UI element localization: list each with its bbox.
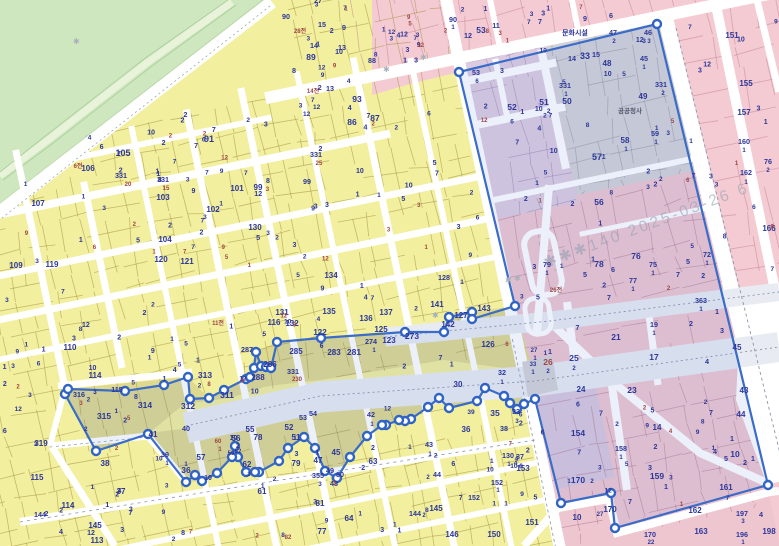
svg-text:7: 7 xyxy=(459,495,463,502)
svg-text:109: 109 xyxy=(9,261,23,270)
svg-text:76: 76 xyxy=(631,251,641,261)
svg-text:115: 115 xyxy=(111,385,123,394)
svg-text:5: 5 xyxy=(296,272,300,279)
svg-text:3: 3 xyxy=(530,11,534,18)
svg-text:3: 3 xyxy=(541,10,545,17)
svg-text:1: 1 xyxy=(664,482,668,491)
svg-text:7: 7 xyxy=(438,355,442,362)
svg-text:7: 7 xyxy=(549,112,553,119)
svg-text:5: 5 xyxy=(433,160,437,167)
svg-text:137: 137 xyxy=(379,308,393,317)
svg-text:3: 3 xyxy=(666,130,670,137)
svg-text:25: 25 xyxy=(316,161,323,167)
svg-text:6: 6 xyxy=(611,265,615,274)
svg-text:12: 12 xyxy=(388,29,396,36)
svg-text:2: 2 xyxy=(526,448,530,455)
svg-text:2: 2 xyxy=(3,381,7,388)
svg-text:8: 8 xyxy=(425,507,429,514)
svg-text:26전: 26전 xyxy=(550,286,563,294)
svg-text:127: 127 xyxy=(454,311,468,320)
svg-text:5: 5 xyxy=(536,294,540,301)
svg-text:86: 86 xyxy=(347,117,357,127)
svg-text:314: 314 xyxy=(138,400,152,410)
svg-text:3: 3 xyxy=(709,174,713,181)
svg-text:113: 113 xyxy=(91,536,104,545)
svg-text:8: 8 xyxy=(181,530,185,537)
svg-text:52: 52 xyxy=(285,423,294,432)
svg-text:15: 15 xyxy=(318,20,326,29)
svg-text:✱: ✱ xyxy=(514,274,521,283)
svg-text:9: 9 xyxy=(468,252,472,259)
svg-text:14: 14 xyxy=(568,54,576,63)
svg-text:1: 1 xyxy=(712,445,716,452)
svg-text:2: 2 xyxy=(402,364,406,371)
svg-text:7: 7 xyxy=(61,289,65,296)
svg-text:1: 1 xyxy=(105,502,109,509)
svg-text:2: 2 xyxy=(172,536,176,543)
svg-text:17: 17 xyxy=(649,352,659,362)
svg-text:2: 2 xyxy=(143,310,147,317)
svg-text:5: 5 xyxy=(184,341,188,348)
svg-text:78: 78 xyxy=(594,259,604,269)
svg-text:9: 9 xyxy=(583,14,587,23)
svg-text:1: 1 xyxy=(170,336,174,343)
svg-text:3: 3 xyxy=(698,68,702,75)
svg-text:1: 1 xyxy=(356,191,360,198)
svg-text:6: 6 xyxy=(451,461,455,468)
svg-text:363: 363 xyxy=(695,296,707,305)
svg-text:2: 2 xyxy=(704,399,708,406)
svg-text:53: 53 xyxy=(299,413,307,422)
svg-text:25: 25 xyxy=(569,353,579,363)
svg-text:15: 15 xyxy=(592,50,600,59)
svg-text:21: 21 xyxy=(611,332,621,342)
svg-text:152: 152 xyxy=(491,478,503,487)
svg-text:36: 36 xyxy=(462,425,471,434)
svg-text:8: 8 xyxy=(609,190,613,197)
svg-text:44: 44 xyxy=(737,410,746,419)
svg-text:2: 2 xyxy=(743,458,747,467)
svg-text:10: 10 xyxy=(535,106,543,113)
svg-text:197: 197 xyxy=(736,509,748,518)
svg-text:7: 7 xyxy=(413,35,417,42)
svg-text:3: 3 xyxy=(646,184,650,191)
svg-text:1: 1 xyxy=(24,181,28,188)
svg-text:7: 7 xyxy=(128,510,132,517)
svg-text:10: 10 xyxy=(155,455,163,462)
svg-text:1: 1 xyxy=(377,192,381,199)
svg-text:3: 3 xyxy=(186,177,190,184)
svg-text:1: 1 xyxy=(148,355,152,362)
svg-text:9: 9 xyxy=(220,168,224,175)
svg-text:283: 283 xyxy=(327,348,341,357)
svg-text:2: 2 xyxy=(524,196,528,203)
svg-text:5: 5 xyxy=(178,362,182,369)
svg-text:27: 27 xyxy=(531,348,538,354)
svg-text:15: 15 xyxy=(163,186,170,192)
svg-text:3: 3 xyxy=(715,181,719,188)
svg-text:2: 2 xyxy=(200,229,204,236)
svg-text:3: 3 xyxy=(34,441,38,448)
svg-text:157: 157 xyxy=(737,108,751,117)
svg-text:3: 3 xyxy=(457,224,461,231)
svg-text:3: 3 xyxy=(295,451,299,458)
svg-text:2: 2 xyxy=(84,426,88,433)
svg-text:1: 1 xyxy=(598,221,602,228)
svg-text:107: 107 xyxy=(31,199,45,208)
svg-text:1: 1 xyxy=(24,342,28,349)
svg-text:49: 49 xyxy=(639,92,648,101)
svg-text:114: 114 xyxy=(89,371,102,380)
svg-text:7: 7 xyxy=(676,270,680,279)
svg-text:80: 80 xyxy=(336,470,344,479)
svg-text:✱: ✱ xyxy=(420,53,427,62)
svg-text:56: 56 xyxy=(594,197,604,207)
svg-text:12: 12 xyxy=(318,65,326,72)
svg-text:8: 8 xyxy=(374,51,378,58)
svg-text:1: 1 xyxy=(219,201,223,208)
svg-text:144: 144 xyxy=(409,509,421,518)
svg-text:5: 5 xyxy=(136,237,140,244)
svg-text:14: 14 xyxy=(653,423,662,432)
svg-text:45: 45 xyxy=(640,54,648,63)
svg-text:7: 7 xyxy=(194,143,198,150)
svg-text:58: 58 xyxy=(621,136,630,145)
svg-text:355: 355 xyxy=(312,471,324,480)
svg-text:162: 162 xyxy=(740,168,752,177)
svg-text:3: 3 xyxy=(669,475,673,482)
svg-text:9: 9 xyxy=(774,19,778,26)
svg-text:3: 3 xyxy=(598,464,602,471)
svg-text:5: 5 xyxy=(401,196,405,203)
svg-text:9: 9 xyxy=(520,491,524,498)
svg-text:10: 10 xyxy=(550,148,558,155)
svg-text:48: 48 xyxy=(603,59,612,68)
svg-text:3: 3 xyxy=(325,202,329,209)
svg-text:151: 151 xyxy=(525,518,539,527)
svg-text:1: 1 xyxy=(484,6,488,13)
svg-text:77: 77 xyxy=(318,527,327,536)
svg-text:24: 24 xyxy=(577,385,586,394)
svg-text:7: 7 xyxy=(628,497,632,506)
svg-text:3: 3 xyxy=(28,392,32,399)
svg-text:82: 82 xyxy=(285,535,292,541)
svg-text:7: 7 xyxy=(173,158,177,165)
svg-text:150: 150 xyxy=(487,530,501,539)
svg-text:8: 8 xyxy=(158,177,162,184)
svg-text:6: 6 xyxy=(510,118,514,125)
svg-text:1: 1 xyxy=(535,180,539,187)
svg-text:119: 119 xyxy=(46,260,59,269)
svg-text:3: 3 xyxy=(72,335,76,342)
svg-text:2: 2 xyxy=(303,254,307,261)
svg-text:89: 89 xyxy=(306,52,316,62)
svg-text:2: 2 xyxy=(371,445,375,452)
svg-text:126: 126 xyxy=(481,340,495,349)
svg-text:287: 287 xyxy=(241,345,253,354)
svg-text:123: 123 xyxy=(382,336,396,345)
svg-text:45: 45 xyxy=(332,448,341,457)
svg-text:1: 1 xyxy=(315,450,319,457)
svg-text:3: 3 xyxy=(293,242,297,249)
svg-text:4: 4 xyxy=(537,126,541,133)
svg-text:10: 10 xyxy=(730,449,740,459)
svg-text:9: 9 xyxy=(321,72,325,79)
svg-text:120: 120 xyxy=(154,255,168,264)
svg-text:7: 7 xyxy=(205,169,209,176)
svg-text:54: 54 xyxy=(309,409,317,418)
svg-text:40: 40 xyxy=(182,424,190,433)
svg-text:2: 2 xyxy=(275,234,279,241)
svg-text:2: 2 xyxy=(701,273,705,280)
svg-text:45: 45 xyxy=(733,343,742,352)
svg-text:12: 12 xyxy=(400,32,408,39)
svg-text:8: 8 xyxy=(292,66,296,75)
svg-text:10: 10 xyxy=(737,37,745,44)
svg-text:1: 1 xyxy=(79,237,83,244)
svg-text:32: 32 xyxy=(498,368,506,377)
svg-text:✱: ✱ xyxy=(432,311,439,320)
svg-text:1: 1 xyxy=(316,42,320,49)
svg-text:2: 2 xyxy=(653,444,657,451)
svg-text:7: 7 xyxy=(538,17,542,26)
svg-text:1: 1 xyxy=(450,362,454,369)
svg-text:3: 3 xyxy=(380,527,384,534)
svg-text:12: 12 xyxy=(254,191,262,198)
svg-text:1: 1 xyxy=(751,456,755,463)
svg-text:125: 125 xyxy=(374,325,388,334)
svg-text:2: 2 xyxy=(236,443,240,450)
svg-text:114: 114 xyxy=(62,501,75,510)
svg-text:142: 142 xyxy=(441,320,455,329)
svg-text:285: 285 xyxy=(289,347,303,356)
svg-text:1: 1 xyxy=(602,154,606,161)
svg-text:154: 154 xyxy=(571,428,585,438)
svg-text:7: 7 xyxy=(576,325,580,332)
svg-text:1: 1 xyxy=(764,119,768,126)
svg-text:7: 7 xyxy=(244,170,248,177)
svg-text:53: 53 xyxy=(472,68,480,77)
svg-text:4: 4 xyxy=(364,294,368,301)
svg-text:57: 57 xyxy=(197,453,206,462)
svg-text:20: 20 xyxy=(125,182,132,188)
svg-text:7: 7 xyxy=(212,127,216,134)
svg-text:9: 9 xyxy=(696,429,700,436)
svg-text:103: 103 xyxy=(156,193,170,202)
svg-text:10: 10 xyxy=(604,71,612,78)
svg-text:2: 2 xyxy=(198,382,202,389)
svg-text:6전: 6전 xyxy=(74,162,83,170)
svg-text:1: 1 xyxy=(382,27,386,34)
svg-text:3: 3 xyxy=(266,230,270,237)
svg-text:2: 2 xyxy=(151,302,155,309)
svg-text:130: 130 xyxy=(502,451,514,460)
svg-text:90: 90 xyxy=(449,15,457,24)
svg-text:1: 1 xyxy=(689,138,693,145)
svg-text:52: 52 xyxy=(507,102,517,112)
svg-text:1: 1 xyxy=(261,483,265,490)
svg-text:2: 2 xyxy=(330,28,334,35)
svg-text:2: 2 xyxy=(646,168,650,175)
svg-text:78: 78 xyxy=(254,433,263,442)
svg-text:6: 6 xyxy=(576,401,580,408)
svg-text:79: 79 xyxy=(292,459,301,468)
svg-text:9: 9 xyxy=(192,188,196,195)
svg-text:311: 311 xyxy=(220,390,234,400)
svg-text:60: 60 xyxy=(215,439,222,445)
svg-text:8: 8 xyxy=(586,122,590,129)
svg-text:104: 104 xyxy=(158,235,172,244)
svg-text:1: 1 xyxy=(460,279,464,286)
svg-text:134: 134 xyxy=(324,271,338,280)
svg-text:46: 46 xyxy=(644,28,652,37)
svg-text:12: 12 xyxy=(703,62,711,69)
svg-text:33: 33 xyxy=(530,362,537,368)
svg-text:141: 141 xyxy=(430,300,444,309)
svg-text:2: 2 xyxy=(659,176,663,183)
svg-text:1: 1 xyxy=(490,458,494,465)
svg-text:19: 19 xyxy=(650,320,658,329)
svg-text:8: 8 xyxy=(281,532,285,539)
svg-text:6: 6 xyxy=(476,214,480,221)
svg-text:1: 1 xyxy=(156,171,160,178)
svg-text:10: 10 xyxy=(356,168,364,175)
svg-text:72: 72 xyxy=(703,250,711,259)
svg-text:288: 288 xyxy=(251,373,265,382)
svg-text:23: 23 xyxy=(627,385,637,395)
svg-text:7: 7 xyxy=(201,217,205,224)
svg-text:4: 4 xyxy=(348,105,352,112)
svg-text:1: 1 xyxy=(90,484,94,491)
svg-text:13: 13 xyxy=(326,84,334,93)
svg-text:313: 313 xyxy=(198,370,212,380)
svg-text:42: 42 xyxy=(367,410,375,419)
svg-text:10: 10 xyxy=(230,435,238,442)
svg-text:63: 63 xyxy=(369,457,378,466)
svg-text:1: 1 xyxy=(504,501,508,508)
svg-text:5: 5 xyxy=(262,331,266,338)
svg-text:315: 315 xyxy=(97,411,111,421)
svg-text:273: 273 xyxy=(405,331,419,341)
svg-text:5: 5 xyxy=(625,461,629,468)
svg-text:5: 5 xyxy=(562,79,566,86)
svg-text:43: 43 xyxy=(425,440,433,449)
svg-text:10: 10 xyxy=(405,183,413,190)
svg-text:12: 12 xyxy=(15,406,23,413)
svg-text:1: 1 xyxy=(543,350,547,357)
svg-text:35: 35 xyxy=(490,408,500,418)
svg-text:2: 2 xyxy=(461,6,465,13)
svg-text:9: 9 xyxy=(151,348,155,355)
svg-text:2: 2 xyxy=(59,508,63,515)
svg-text:10: 10 xyxy=(573,513,582,522)
svg-text:1: 1 xyxy=(655,125,659,132)
svg-text:2: 2 xyxy=(319,146,323,153)
svg-text:2: 2 xyxy=(168,222,172,229)
svg-text:9: 9 xyxy=(645,423,649,430)
svg-text:2: 2 xyxy=(654,182,658,189)
svg-text:4: 4 xyxy=(759,510,763,519)
svg-text:2: 2 xyxy=(602,283,606,290)
svg-text:64: 64 xyxy=(345,514,354,523)
svg-text:✱: ✱ xyxy=(73,37,80,46)
svg-text:4: 4 xyxy=(59,529,63,536)
svg-text:7: 7 xyxy=(599,410,603,417)
svg-text:44: 44 xyxy=(433,470,441,479)
svg-text:3: 3 xyxy=(315,2,319,9)
svg-text:10: 10 xyxy=(540,48,548,55)
svg-text:7: 7 xyxy=(435,170,439,177)
svg-text:4: 4 xyxy=(347,78,351,85)
svg-text:5: 5 xyxy=(544,170,548,177)
svg-text:12: 12 xyxy=(322,257,329,263)
svg-text:9: 9 xyxy=(325,518,329,525)
svg-text:41: 41 xyxy=(149,430,158,439)
svg-text:5: 5 xyxy=(686,257,690,266)
svg-text:9: 9 xyxy=(162,509,166,516)
svg-text:116: 116 xyxy=(268,318,281,327)
svg-text:3: 3 xyxy=(120,527,124,534)
svg-text:312: 312 xyxy=(181,401,195,411)
svg-text:281: 281 xyxy=(347,347,361,357)
svg-text:6: 6 xyxy=(541,430,545,437)
svg-text:7: 7 xyxy=(371,295,375,302)
svg-text:110: 110 xyxy=(64,343,77,352)
svg-text:1: 1 xyxy=(560,263,564,270)
svg-text:5: 5 xyxy=(583,270,587,279)
svg-text:3: 3 xyxy=(720,326,724,335)
svg-text:1: 1 xyxy=(403,57,407,64)
svg-text:1: 1 xyxy=(398,527,402,534)
svg-text:2: 2 xyxy=(394,125,398,132)
svg-text:12: 12 xyxy=(281,314,288,320)
svg-text:106: 106 xyxy=(81,164,95,173)
svg-text:53: 53 xyxy=(476,25,486,35)
svg-text:10: 10 xyxy=(89,365,97,372)
svg-text:230: 230 xyxy=(292,377,303,383)
svg-text:2: 2 xyxy=(87,397,91,404)
svg-text:39: 39 xyxy=(467,409,475,416)
svg-text:8: 8 xyxy=(266,178,270,185)
svg-text:4: 4 xyxy=(705,357,709,366)
svg-text:122: 122 xyxy=(313,328,327,337)
svg-text:2: 2 xyxy=(361,465,365,472)
svg-text:3: 3 xyxy=(299,102,303,109)
svg-text:3: 3 xyxy=(35,258,39,265)
svg-text:7: 7 xyxy=(117,150,121,157)
svg-text:2: 2 xyxy=(115,491,119,498)
svg-text:2: 2 xyxy=(318,85,322,92)
svg-text:170: 170 xyxy=(644,530,656,539)
svg-text:3: 3 xyxy=(520,293,524,300)
svg-text:47: 47 xyxy=(314,456,323,465)
svg-text:7: 7 xyxy=(527,19,531,26)
svg-text:155: 155 xyxy=(739,79,753,88)
svg-text:136: 136 xyxy=(359,314,373,323)
svg-text:198: 198 xyxy=(762,527,776,536)
svg-text:3: 3 xyxy=(93,389,97,396)
svg-text:문화시설: 문화시설 xyxy=(562,28,588,37)
svg-text:4: 4 xyxy=(317,316,321,323)
svg-text:10: 10 xyxy=(204,475,212,482)
svg-text:331: 331 xyxy=(655,80,667,89)
svg-text:1: 1 xyxy=(360,283,364,290)
svg-text:2: 2 xyxy=(273,476,277,483)
svg-text:2: 2 xyxy=(162,140,166,147)
svg-text:1: 1 xyxy=(492,501,496,508)
svg-text:1: 1 xyxy=(520,109,524,116)
svg-text:26: 26 xyxy=(543,357,553,367)
